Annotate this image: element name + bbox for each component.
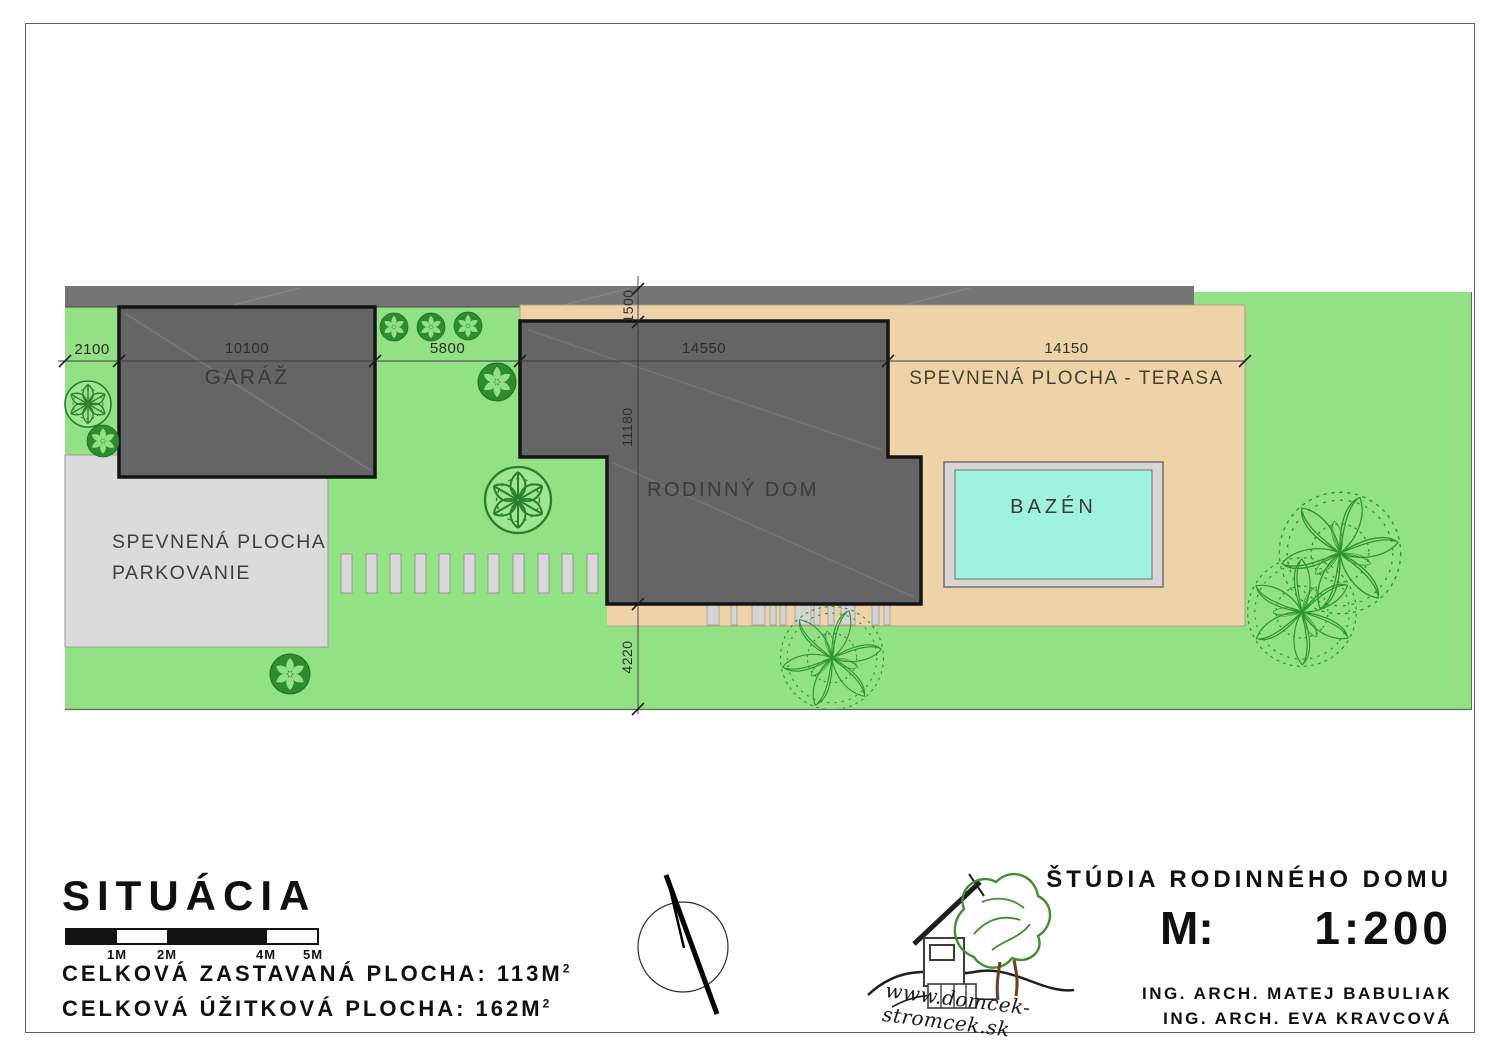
architect-2: ING. ARCH. EVA KRAVCOVÁ xyxy=(1163,1009,1452,1029)
sheet-title: SITUÁCIA xyxy=(62,872,316,920)
garage-label: GARÁŽ xyxy=(119,366,375,390)
architect-1: ING. ARCH. MATEJ BABULIAK xyxy=(1142,984,1452,1004)
usable-area-text: CELKOVÁ ÚŽITKOVÁ PLOCHA: 162M2 xyxy=(62,996,552,1022)
dimension-garage-width: 10100 xyxy=(119,340,375,357)
project-title: ŠTÚDIA RODINNÉHO DOMU xyxy=(1046,866,1452,894)
tree-icon xyxy=(417,313,445,341)
dimension-left-offset: 2100 xyxy=(65,341,119,358)
built-area-sup: 2 xyxy=(563,962,573,976)
house-label: RODINNÝ DOM xyxy=(583,479,883,502)
usable-area-value: CELKOVÁ ÚŽITKOVÁ PLOCHA: 162M xyxy=(62,996,543,1021)
usable-area-sup: 2 xyxy=(543,997,553,1011)
dimension-terrace-width: 14150 xyxy=(888,340,1245,357)
scale-bar-segment xyxy=(117,930,167,943)
scale-label-1m: 1M xyxy=(97,947,137,962)
built-area-value: CELKOVÁ ZASTAVANÁ PLOCHA: 113M xyxy=(62,961,563,986)
garage-area xyxy=(119,307,375,477)
scale-value: 1:200 xyxy=(1314,901,1452,955)
scale-label-5m: 5M xyxy=(293,947,333,962)
parking-label-line2: PARKOVANIE xyxy=(112,562,251,585)
north-arrow-icon xyxy=(638,875,728,1014)
scale-bar-segment xyxy=(267,930,317,943)
parking-label-line1: SPEVNENÁ PLOCHA xyxy=(112,531,326,554)
scale-label-2m: 2M xyxy=(147,947,187,962)
dimension-rear-offset: 4220 xyxy=(619,627,635,687)
pool-label: BAZÉN xyxy=(955,496,1152,519)
dimension-house-width: 14550 xyxy=(520,340,888,357)
tree-icon xyxy=(380,313,408,341)
tree-icon xyxy=(478,363,516,401)
pool xyxy=(944,462,1163,587)
drawing-sheet: 2100 10100 5800 14550 14150 1500 11180 4… xyxy=(0,0,1500,1060)
dimension-front-offset: 1500 xyxy=(620,278,636,334)
scale-bar-segment xyxy=(67,930,117,943)
scale-prefix: M: xyxy=(1160,901,1214,955)
project-scale: M: 1:200 xyxy=(1160,901,1452,955)
tree-icon xyxy=(270,654,310,694)
dimension-garden-gap: 5800 xyxy=(375,340,520,357)
terrace-label: SPEVNENÁ PLOCHA - TERASA xyxy=(888,368,1245,390)
scale-label-4m: 4M xyxy=(246,947,286,962)
tree-icon xyxy=(485,467,551,533)
scale-bar-segment xyxy=(167,930,267,943)
dimension-house-depth: 11180 xyxy=(619,392,635,462)
built-area-text: CELKOVÁ ZASTAVANÁ PLOCHA: 113M2 xyxy=(62,961,572,987)
tree-icon xyxy=(87,425,119,457)
tree-icon xyxy=(65,381,111,427)
tree-icon xyxy=(454,312,482,340)
scale-bar xyxy=(65,928,319,945)
